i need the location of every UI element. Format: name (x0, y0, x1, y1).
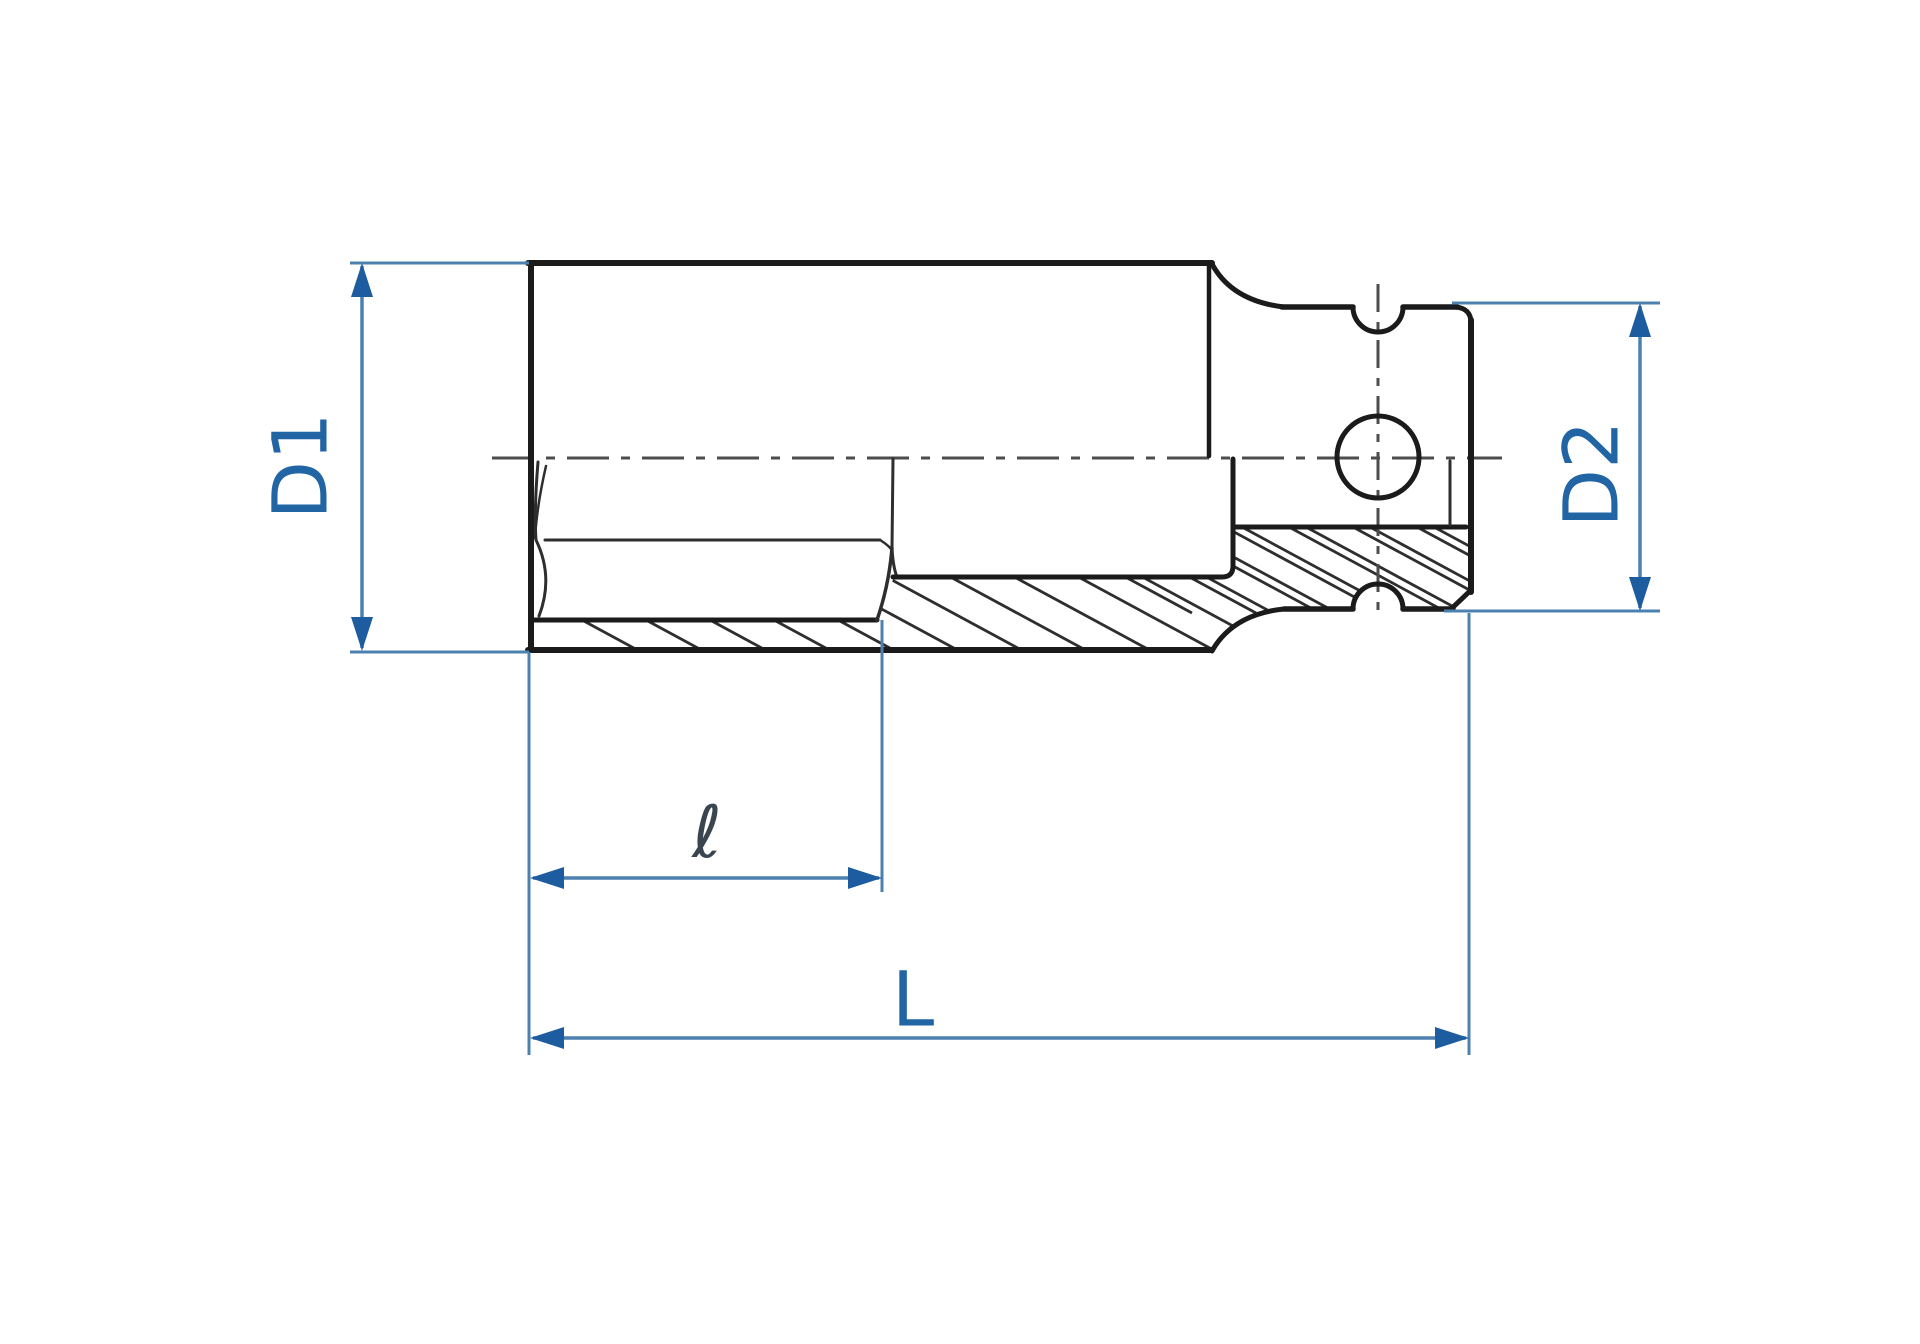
d1-label: D1 (256, 413, 345, 520)
sleeve-length-label: ℓ (690, 790, 722, 874)
drawing-background (0, 0, 1920, 1344)
socket-technical-drawing: D1 D2 ℓ L (0, 0, 1920, 1344)
d2-label: D2 (1547, 421, 1636, 528)
total-length-label: L (892, 955, 934, 1044)
drawing-page: D1 D2 ℓ L (0, 0, 1920, 1344)
